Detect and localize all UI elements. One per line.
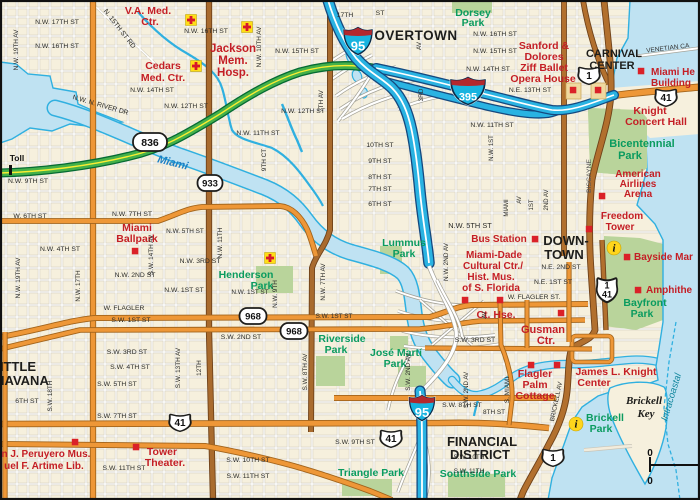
svg-text:S.W. 3RD ST: S.W. 3RD ST: [455, 337, 495, 344]
svg-text:Cedars: Cedars: [145, 60, 181, 72]
svg-text:Miami He: Miami He: [651, 67, 695, 78]
svg-text:Freedom: Freedom: [601, 211, 643, 222]
svg-text:968: 968: [245, 311, 261, 322]
svg-text:Park: Park: [631, 308, 654, 320]
svg-text:7TH ST: 7TH ST: [368, 186, 391, 193]
svg-text:ST: ST: [376, 10, 385, 17]
svg-text:N.W. 16TH ST: N.W. 16TH ST: [35, 43, 79, 50]
svg-text:1ST: 1ST: [529, 199, 535, 210]
svg-text:N.W. 2ND AV: N.W. 2ND AV: [443, 242, 450, 281]
svg-text:N.W. 16TH ST: N.W. 16TH ST: [473, 31, 517, 38]
svg-text:Tower: Tower: [606, 222, 635, 233]
svg-text:0: 0: [647, 448, 653, 459]
svg-text:S.W. 7TH ST: S.W. 7TH ST: [97, 413, 137, 420]
svg-text:Bicentennial: Bicentennial: [609, 138, 674, 150]
svg-text:1: 1: [586, 71, 592, 82]
svg-text:W. FLAGLER: W. FLAGLER: [104, 305, 145, 312]
svg-text:MIAMI: MIAMI: [504, 199, 510, 217]
svg-text:S.W. 2ND AV: S.W. 2ND AV: [405, 353, 412, 391]
svg-text:Concert Hall: Concert Hall: [625, 116, 687, 128]
svg-text:0: 0: [647, 476, 653, 487]
svg-text:of S. Florida: of S. Florida: [462, 283, 520, 294]
svg-text:uel F. Artime Lib.: uel F. Artime Lib.: [4, 461, 84, 472]
svg-text:Mem.: Mem.: [218, 55, 247, 67]
svg-text:41: 41: [602, 290, 612, 300]
svg-text:8TH ST: 8TH ST: [368, 174, 391, 181]
svg-text:S.W. 18TH: S.W. 18TH: [47, 380, 54, 411]
svg-text:Park: Park: [462, 17, 485, 29]
svg-text:TOWN: TOWN: [544, 247, 583, 262]
svg-text:Arena: Arena: [624, 189, 653, 200]
svg-text:N.W. 4TH ST: N.W. 4TH ST: [40, 246, 80, 253]
svg-text:Hosp.: Hosp.: [217, 67, 249, 79]
svg-text:1: 1: [550, 453, 556, 464]
svg-text:N.W. 15TH ST: N.W. 15TH ST: [275, 48, 319, 55]
svg-text:Bayside Mar: Bayside Mar: [634, 252, 693, 263]
svg-text:S.W. 4TH ST: S.W. 4TH ST: [110, 364, 150, 371]
svg-text:10TH ST: 10TH ST: [366, 142, 393, 149]
svg-text:Theater.: Theater.: [145, 457, 185, 469]
svg-text:Park: Park: [384, 358, 407, 370]
svg-text:12TH: 12TH: [196, 360, 203, 376]
svg-text:9TH ST: 9TH ST: [368, 158, 391, 165]
svg-text:n J. Peruyero Mus.: n J. Peruyero Mus.: [2, 449, 91, 460]
svg-text:N.W. 3RD ST: N.W. 3RD ST: [180, 258, 221, 265]
svg-text:9TH CT: 9TH CT: [261, 149, 268, 171]
svg-text:Amphithe: Amphithe: [646, 285, 693, 296]
svg-text:Cultural Ctr./: Cultural Ctr./: [463, 261, 523, 272]
svg-text:N.W. 7TH AV: N.W. 7TH AV: [320, 263, 327, 301]
svg-text:6TH ST: 6TH ST: [15, 398, 38, 405]
svg-text:W. FLAGLER ST.: W. FLAGLER ST.: [508, 294, 561, 301]
svg-text:Brickell: Brickell: [625, 395, 663, 407]
svg-text:41: 41: [174, 418, 186, 429]
svg-text:N.W. 15TH ST: N.W. 15TH ST: [473, 48, 517, 55]
svg-text:933: 933: [202, 178, 218, 189]
svg-text:AV: AV: [517, 196, 523, 204]
svg-text:6TH ST: 6TH ST: [368, 201, 391, 208]
svg-text:Cottage: Cottage: [515, 390, 554, 402]
svg-text:Park: Park: [590, 423, 613, 435]
svg-text:Key: Key: [636, 408, 654, 420]
svg-text:Park: Park: [393, 248, 416, 260]
svg-text:N.W. 19TH AV: N.W. 19TH AV: [13, 29, 20, 70]
svg-text:Jackson: Jackson: [210, 43, 256, 55]
svg-text:DOWN-: DOWN-: [543, 233, 589, 248]
svg-text:N.W. 1ST ST: N.W. 1ST ST: [231, 289, 268, 296]
svg-text:S.W. 2ND ST: S.W. 2ND ST: [221, 334, 261, 341]
svg-text:Opera House: Opera House: [510, 73, 576, 85]
svg-text:HAVANA: HAVANA: [0, 373, 49, 388]
svg-text:N.W. 9TH ST: N.W. 9TH ST: [8, 178, 48, 185]
svg-text:Hist. Mus.: Hist. Mus.: [467, 272, 514, 283]
svg-text:N.W. 5TH ST: N.W. 5TH ST: [448, 221, 492, 230]
svg-text:N.W. 14TH ST: N.W. 14TH ST: [466, 66, 510, 73]
svg-text:8TH ST: 8TH ST: [483, 409, 505, 416]
svg-text:836: 836: [141, 137, 159, 149]
svg-text:S.W. 3RD ST: S.W. 3RD ST: [107, 349, 147, 356]
svg-text:41: 41: [660, 93, 672, 104]
svg-text:N.W. 7TH ST: N.W. 7TH ST: [112, 211, 152, 218]
svg-text:N.E. 2ND ST: N.E. 2ND ST: [541, 264, 580, 271]
svg-text:N.W. 1ST: N.W. 1ST: [489, 135, 495, 161]
svg-text:S.W. 10TH ST: S.W. 10TH ST: [226, 457, 269, 464]
svg-text:Park: Park: [618, 150, 643, 162]
svg-text:N.E. 1ST ST: N.E. 1ST ST: [534, 279, 572, 286]
svg-text:N.W. 5TH ST: N.W. 5TH ST: [166, 228, 204, 235]
svg-text:2ND AV: 2ND AV: [544, 190, 550, 211]
svg-text:S.W. 9TH ST: S.W. 9TH ST: [335, 439, 375, 446]
svg-text:S. MIAMI: S. MIAMI: [504, 377, 511, 403]
svg-text:OVERTOWN: OVERTOWN: [374, 28, 457, 43]
svg-text:CENTER: CENTER: [589, 60, 634, 72]
svg-text:S.W. 8TH ST: S.W. 8TH ST: [442, 402, 482, 409]
svg-text:Triangle Park: Triangle Park: [338, 467, 404, 479]
svg-text:3RD: 3RD: [418, 88, 425, 101]
svg-text:Building: Building: [651, 78, 691, 89]
svg-text:AV: AV: [416, 41, 423, 50]
svg-text:S.W. 1ST ST: S.W. 1ST ST: [316, 313, 353, 320]
svg-text:LITTLE: LITTLE: [0, 359, 36, 374]
svg-text:N.W. 10TH AV: N.W. 10TH AV: [256, 26, 263, 67]
svg-text:N.W. 19TH AV: N.W. 19TH AV: [15, 257, 22, 298]
svg-text:S.W. 11TH: S.W. 11TH: [454, 468, 485, 475]
svg-text:S.W. 11TH ST: S.W. 11TH ST: [227, 473, 270, 480]
svg-text:N.W. 11TH: N.W. 11TH: [217, 227, 224, 258]
svg-text:17TH: 17TH: [337, 12, 354, 19]
svg-text:S.W. 11TH ST: S.W. 11TH ST: [103, 465, 146, 472]
svg-text:S.W. 13TH AV: S.W. 13TH AV: [175, 347, 182, 388]
svg-text:Med. Ctr.: Med. Ctr.: [141, 72, 185, 84]
svg-text:BISCAYNE: BISCAYNE: [586, 159, 593, 193]
svg-text:7TH AV: 7TH AV: [318, 89, 325, 111]
svg-text:Park: Park: [325, 344, 348, 356]
svg-text:N.W. 17TH: N.W. 17TH: [75, 270, 82, 302]
svg-text:S.W. 8TH AV: S.W. 8TH AV: [302, 353, 309, 391]
svg-text:968: 968: [286, 326, 302, 337]
svg-text:N.E. 13TH ST: N.E. 13TH ST: [509, 87, 551, 94]
svg-text:41: 41: [385, 434, 397, 445]
svg-text:S.W. 14TH AV: S.W. 14TH AV: [148, 234, 155, 275]
svg-text:N.W. 1ST ST: N.W. 1ST ST: [164, 287, 204, 294]
svg-text:395: 395: [459, 92, 477, 104]
svg-text:S.W. 2ND AV: S.W. 2ND AV: [463, 371, 470, 408]
svg-text:N.W. 16TH ST: N.W. 16TH ST: [184, 28, 228, 35]
svg-text:S.W. 1ST ST: S.W. 1ST ST: [111, 317, 150, 324]
svg-text:95: 95: [415, 405, 429, 420]
svg-text:N.W. 17TH ST: N.W. 17TH ST: [35, 19, 79, 26]
svg-text:Bus Station: Bus Station: [471, 234, 527, 245]
svg-text:N.W. 14TH ST: N.W. 14TH ST: [130, 87, 174, 94]
svg-text:N.W. 12TH ST: N.W. 12TH ST: [164, 103, 208, 110]
svg-text:N.W. 9TH: N.W. 9TH: [272, 280, 279, 308]
svg-text:S.W. 10TH: S.W. 10TH: [454, 454, 485, 461]
svg-text:95: 95: [351, 39, 365, 54]
svg-text:N.W. 11TH ST: N.W. 11TH ST: [236, 130, 279, 137]
svg-text:CARNIVAL: CARNIVAL: [586, 48, 642, 60]
svg-text:Toll: Toll: [10, 153, 24, 163]
svg-text:S.W. 5TH ST: S.W. 5TH ST: [97, 381, 137, 388]
svg-text:W. 6TH ST: W. 6TH ST: [13, 213, 46, 220]
svg-text:Ctr.: Ctr.: [537, 335, 555, 347]
svg-text:AV: AV: [482, 311, 488, 318]
svg-text:Miami-Dade: Miami-Dade: [466, 250, 523, 261]
svg-text:N.W. 11TH ST: N.W. 11TH ST: [470, 122, 513, 129]
svg-text:Ctr.: Ctr.: [141, 16, 159, 28]
svg-text:Center: Center: [577, 377, 610, 389]
